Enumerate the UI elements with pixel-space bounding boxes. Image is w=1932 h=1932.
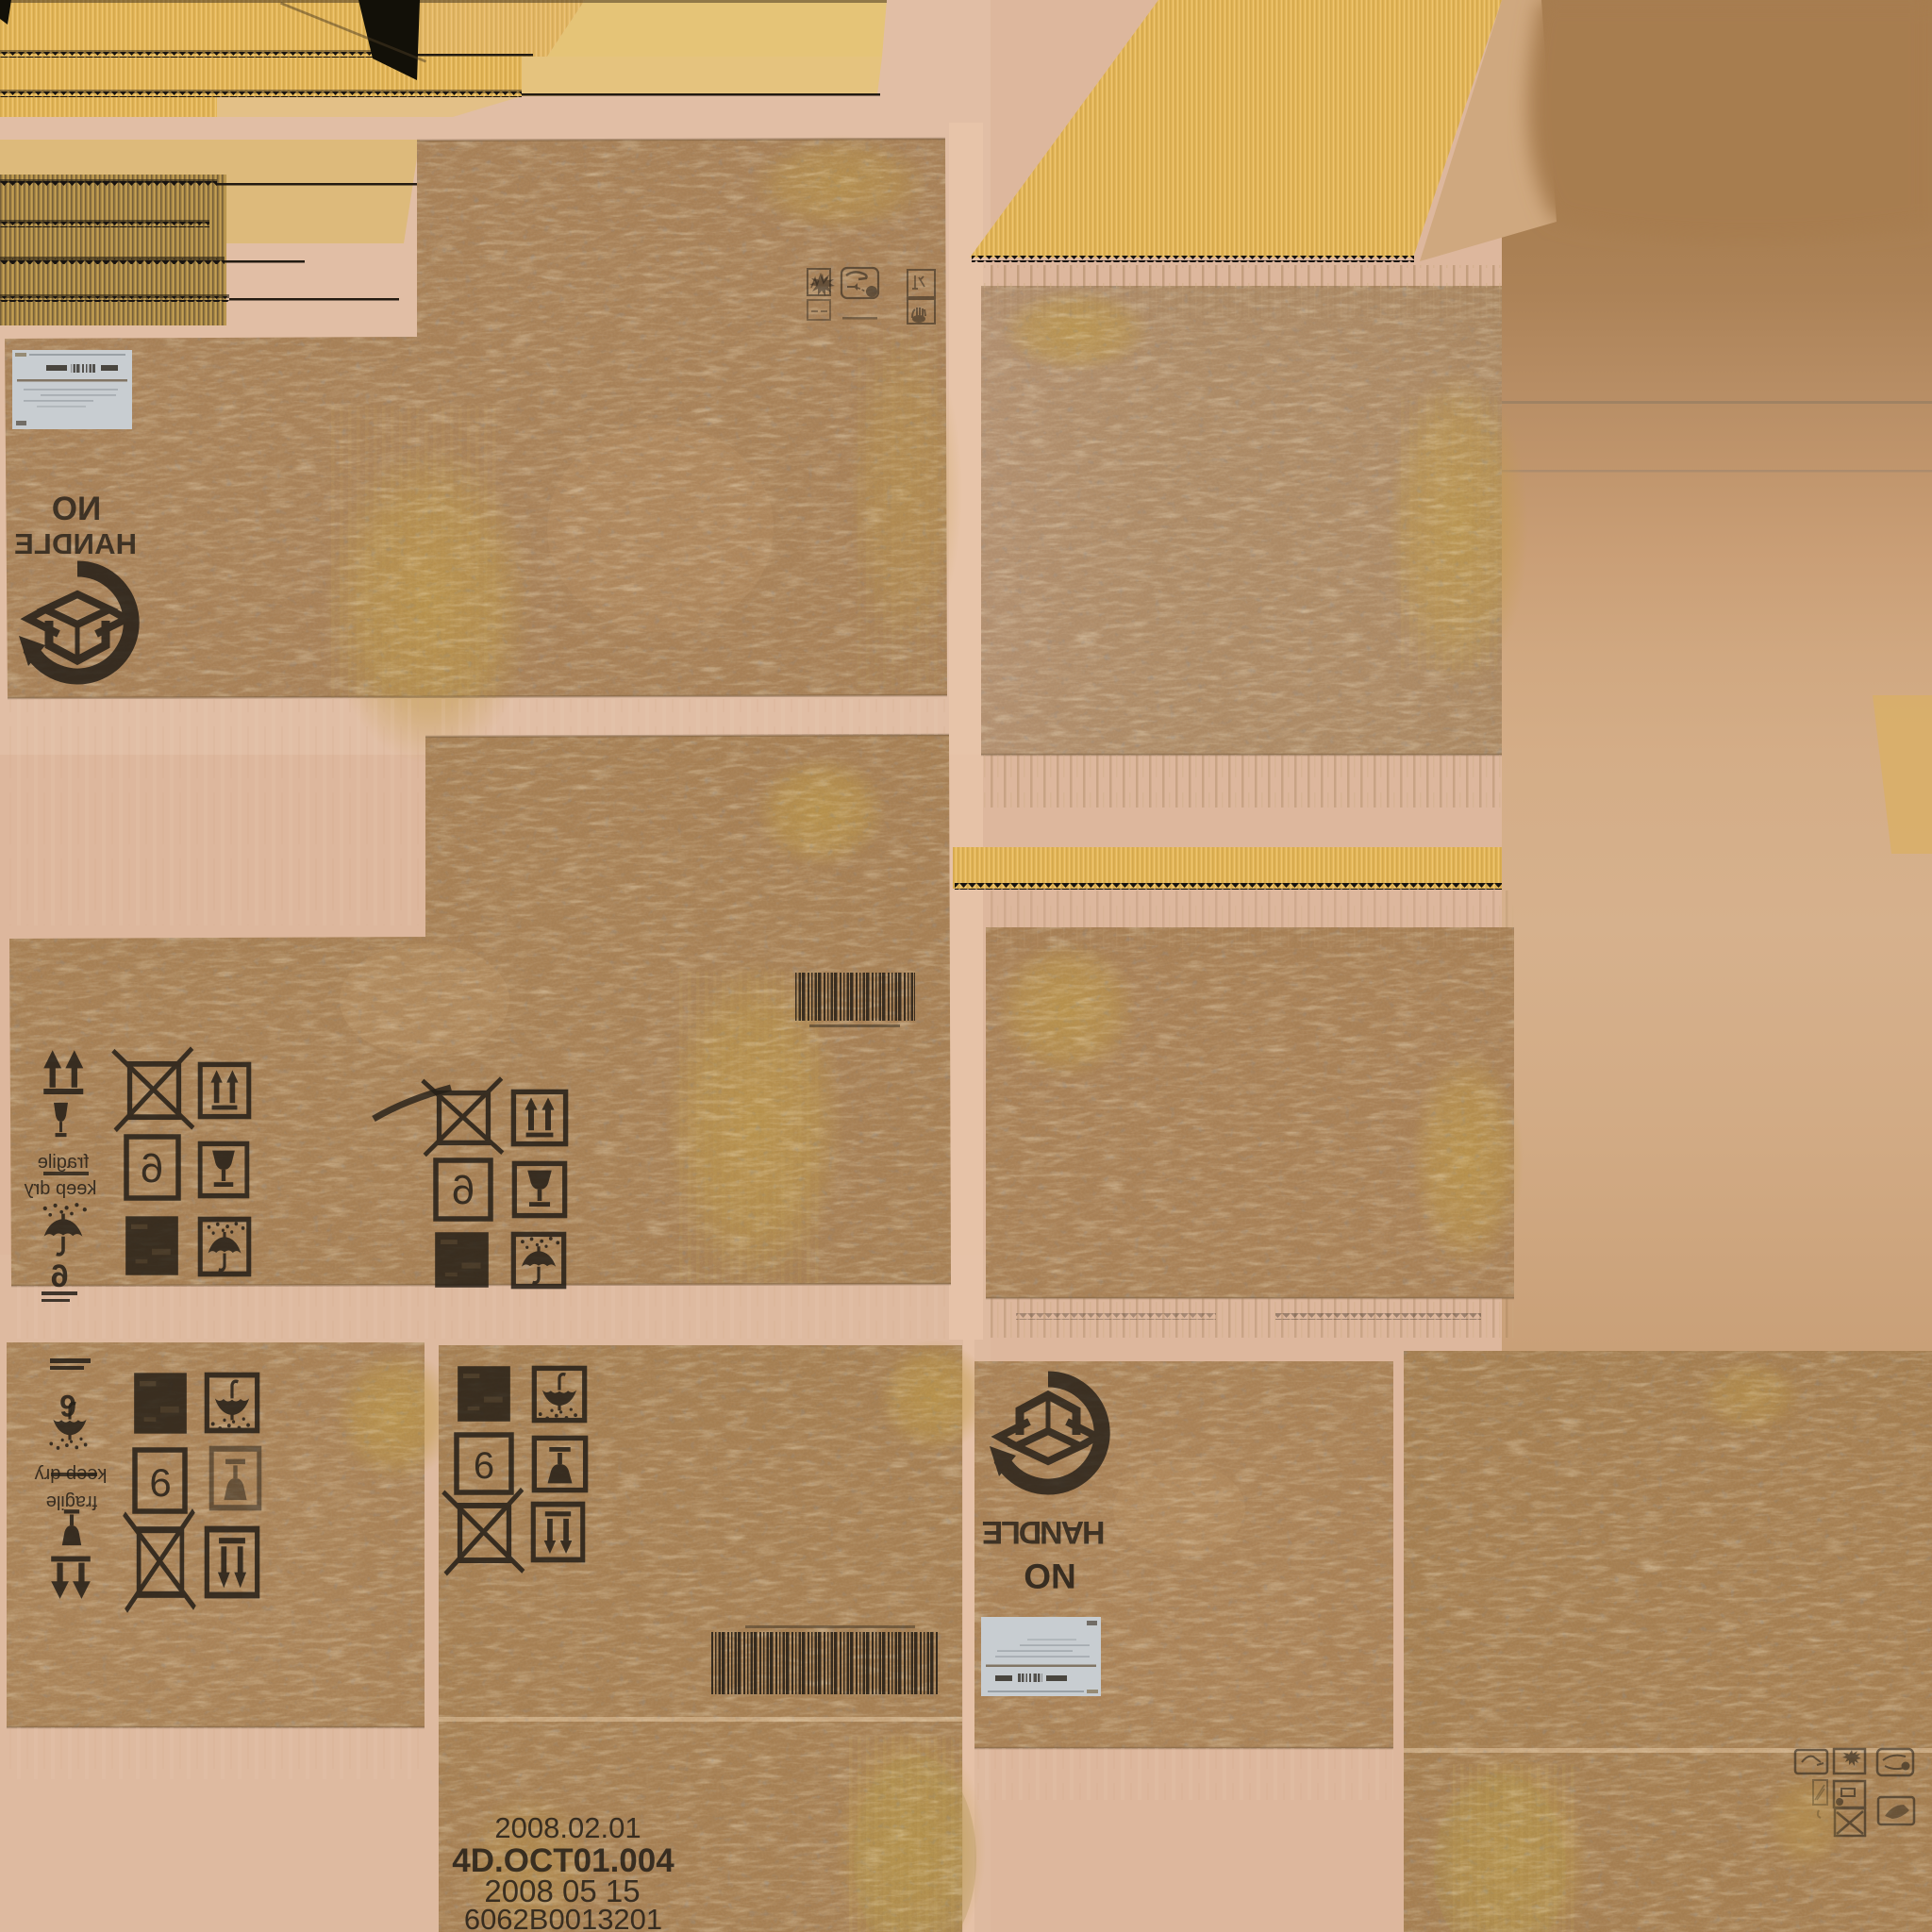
svg-text:6: 6 (59, 1389, 76, 1423)
svg-text:2008.02.01: 2008.02.01 (494, 1811, 641, 1844)
svg-text:6: 6 (51, 1258, 69, 1294)
svg-text:fragile: fragile (38, 1152, 89, 1173)
svg-text:NO: NO (1024, 1557, 1076, 1595)
svg-text:6: 6 (149, 1460, 171, 1505)
svg-text:keep dry: keep dry (25, 1178, 97, 1199)
svg-text:HANDLE: HANDLE (982, 1514, 1106, 1550)
svg-text:NO: NO (52, 491, 102, 527)
svg-text:6: 6 (452, 1167, 475, 1213)
svg-text:fragile: fragile (46, 1491, 97, 1512)
svg-text:HANDLE: HANDLE (14, 527, 137, 560)
svg-text:6: 6 (141, 1145, 163, 1191)
svg-text:6: 6 (474, 1445, 494, 1487)
svg-text:6062B0013201: 6062B0013201 (464, 1903, 662, 1932)
